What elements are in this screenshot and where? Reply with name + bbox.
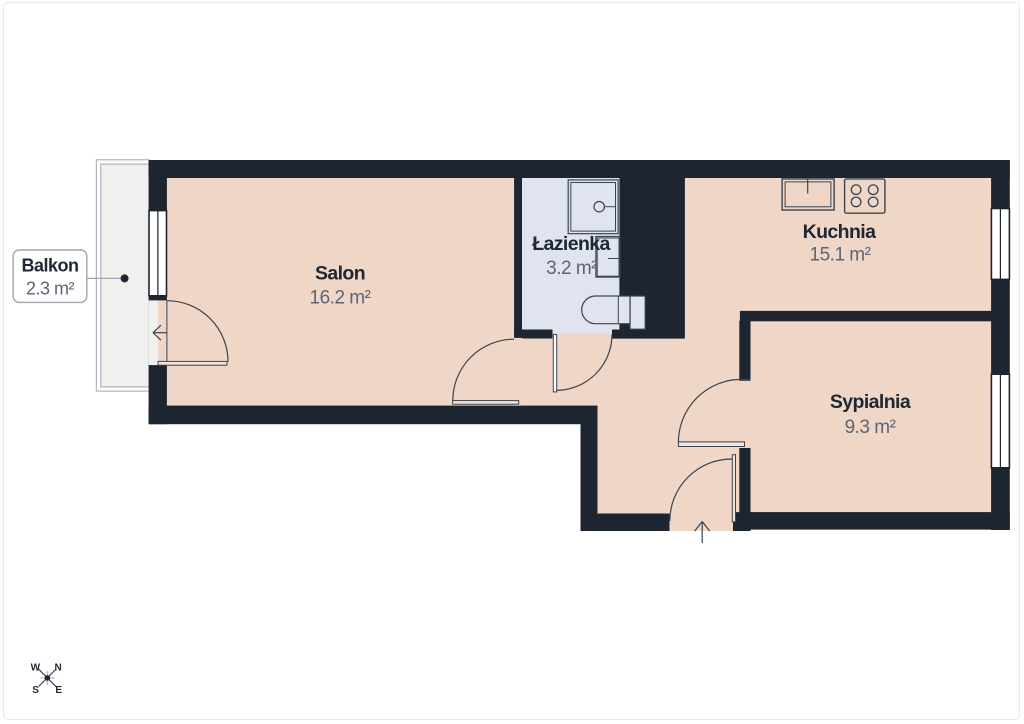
svg-text:Kuchnia: Kuchnia (803, 221, 876, 243)
svg-text:Salon: Salon (315, 262, 365, 284)
svg-text:15.1 m²: 15.1 m² (810, 245, 871, 266)
svg-text:W: W (31, 662, 41, 673)
svg-text:E: E (55, 685, 62, 696)
svg-text:9.3 m²: 9.3 m² (845, 417, 896, 438)
svg-text:3.2 m²: 3.2 m² (546, 258, 597, 279)
svg-text:N: N (54, 662, 61, 673)
svg-text:S: S (32, 685, 39, 696)
svg-text:Balkon: Balkon (21, 256, 78, 276)
svg-text:2.3 m²: 2.3 m² (26, 279, 75, 299)
svg-text:Łazienka: Łazienka (532, 233, 610, 255)
svg-text:16.2 m²: 16.2 m² (310, 287, 371, 308)
svg-text:Sypialnia: Sypialnia (830, 391, 911, 413)
